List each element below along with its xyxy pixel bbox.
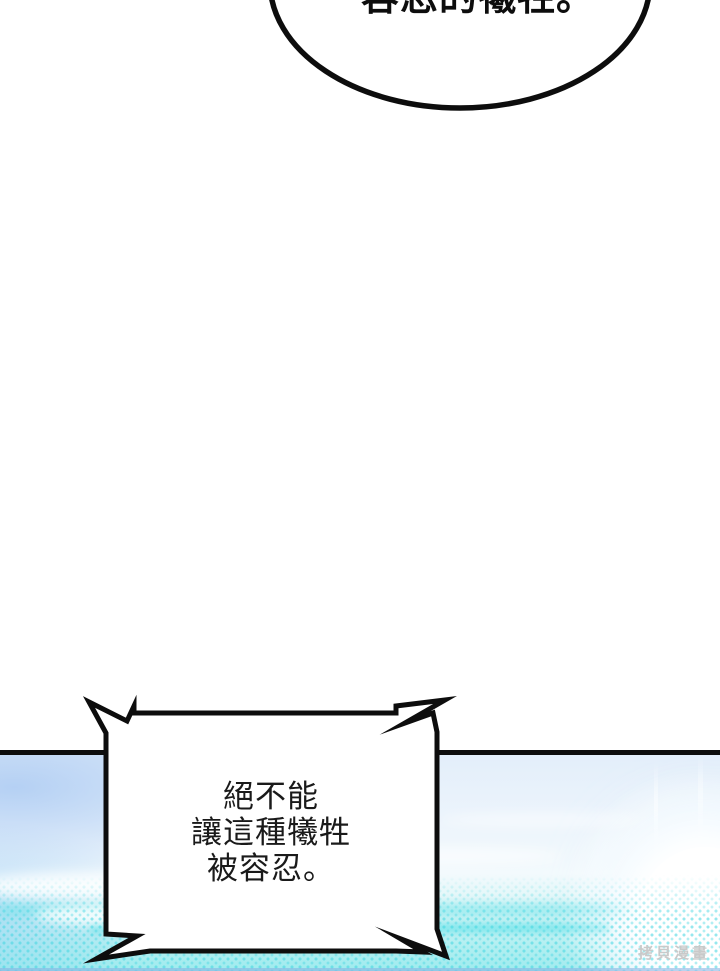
bubble-line: 絕不能: [191, 779, 351, 815]
watermark: 拷貝漫畫: [638, 942, 710, 963]
bottom-bubble-text: 絕不能 讓這種犧牲 被容忍。: [191, 779, 351, 887]
burst-speech-bubble: [0, 0, 720, 971]
comic-page: 容忍的犧牲。 絕不能 讓這種犧牲 被容忍。 拷貝漫畫: [0, 0, 720, 971]
bubble-line: 被容忍。: [191, 851, 351, 887]
bubble-line: 讓這種犧牲: [191, 815, 351, 851]
